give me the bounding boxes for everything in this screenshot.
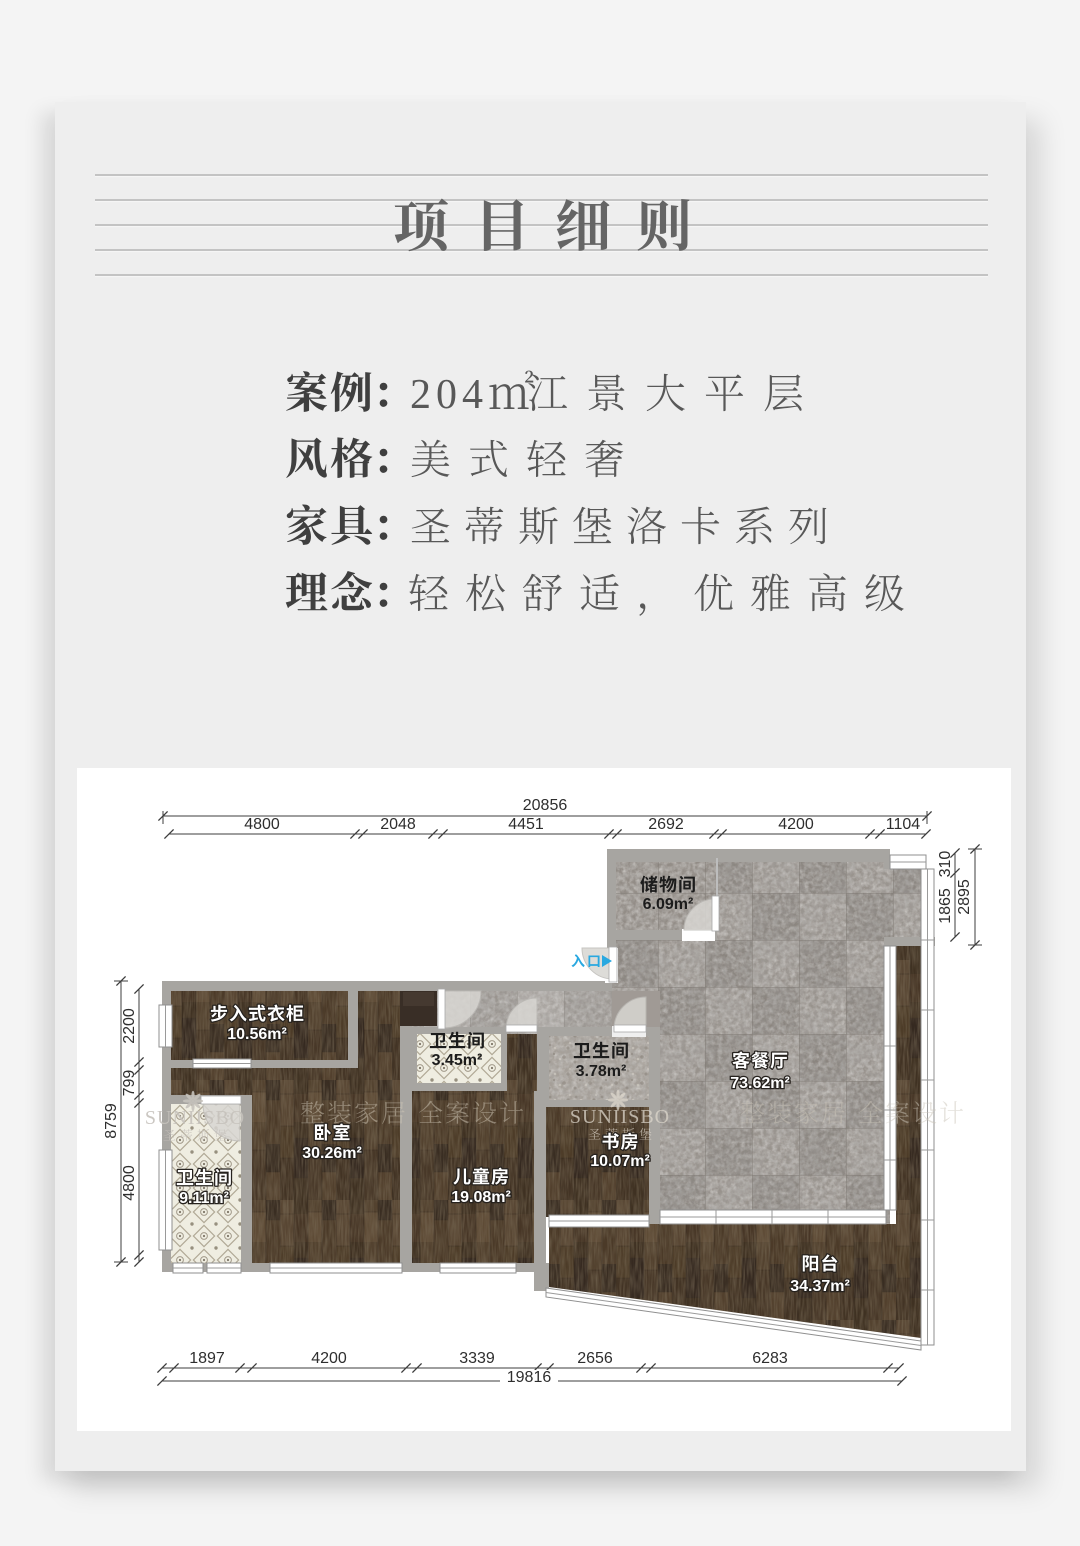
svg-text:34.37m²: 34.37m²: [790, 1278, 850, 1295]
svg-text:2895: 2895: [956, 879, 973, 915]
svg-text:10.56m²: 10.56m²: [227, 1026, 287, 1043]
svg-text:SUNIISBO: SUNIISBO: [570, 1106, 670, 1128]
svg-text:799: 799: [121, 1070, 138, 1097]
svg-text:6.09m²: 6.09m²: [643, 896, 694, 913]
svg-text:204: 204: [410, 372, 488, 418]
svg-text:8759: 8759: [103, 1103, 120, 1139]
svg-text:4200: 4200: [311, 1350, 347, 1367]
svg-text:2692: 2692: [648, 816, 684, 833]
svg-text:3.78m²: 3.78m²: [576, 1063, 627, 1080]
svg-text:2200: 2200: [121, 1008, 138, 1044]
svg-text:30.26m²: 30.26m²: [302, 1145, 362, 1162]
svg-text:9.11m²: 9.11m²: [179, 1190, 229, 1207]
svg-text:1865: 1865: [937, 888, 954, 924]
svg-text:19816: 19816: [507, 1369, 552, 1386]
svg-text:20856: 20856: [523, 797, 568, 814]
svg-text:73.62m²: 73.62m²: [730, 1075, 790, 1092]
svg-text:4800: 4800: [121, 1165, 138, 1201]
svg-text:4451: 4451: [508, 816, 544, 833]
svg-text:3.45m²: 3.45m²: [432, 1052, 483, 1069]
svg-text:2656: 2656: [577, 1350, 613, 1367]
svg-text:1104: 1104: [886, 816, 921, 833]
svg-text:SUNIISBO: SUNIISBO: [145, 1107, 245, 1129]
svg-text:10.07m²: 10.07m²: [590, 1153, 650, 1170]
svg-text:4800: 4800: [244, 816, 280, 833]
svg-text:2048: 2048: [380, 816, 416, 833]
svg-text:4200: 4200: [778, 816, 814, 833]
svg-text:1897: 1897: [189, 1350, 225, 1367]
svg-text:19.08m²: 19.08m²: [451, 1189, 511, 1206]
svg-text:6283: 6283: [752, 1350, 788, 1367]
svg-text:3339: 3339: [459, 1350, 495, 1367]
svg-text:310: 310: [937, 851, 954, 878]
